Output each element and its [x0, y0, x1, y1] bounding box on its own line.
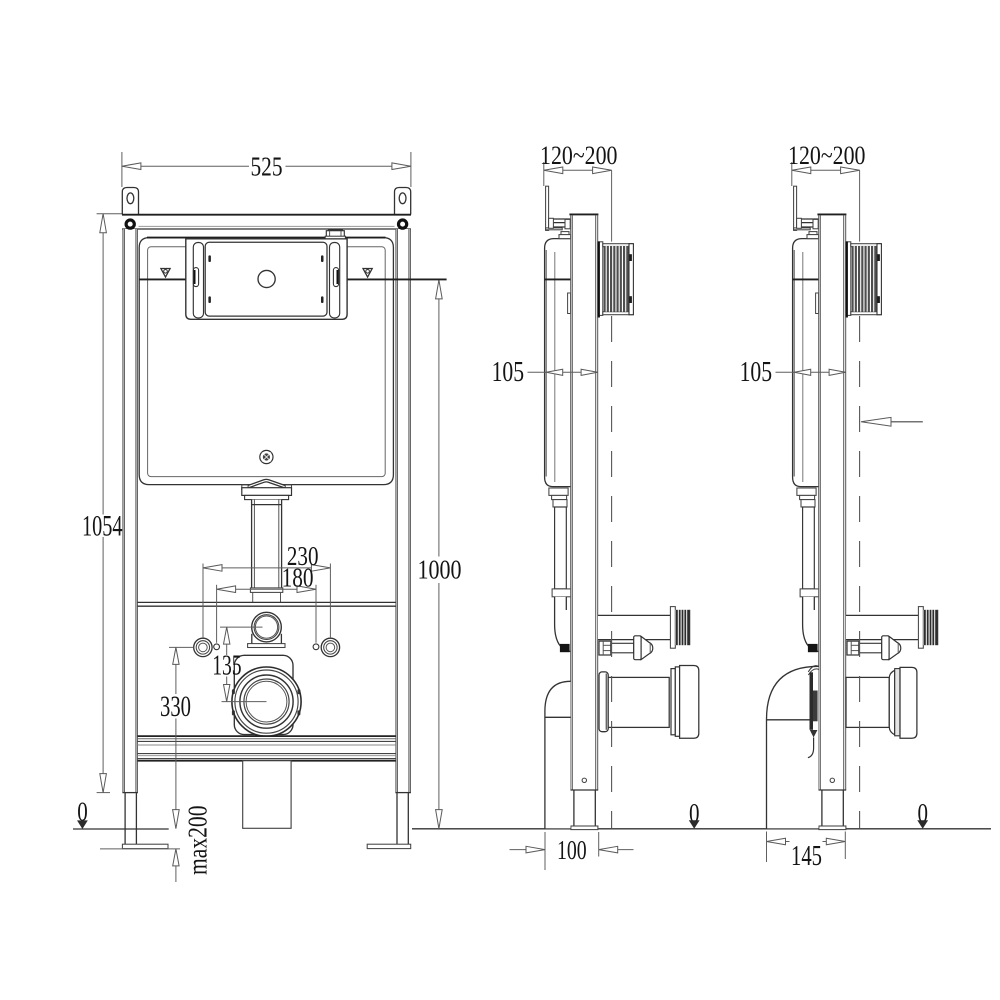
svg-text:105: 105 [492, 356, 524, 388]
svg-text:120~200: 120~200 [788, 140, 866, 170]
svg-text:525: 525 [251, 150, 283, 181]
svg-text:100: 100 [557, 835, 587, 865]
svg-text:120~200: 120~200 [540, 140, 618, 170]
svg-text:330: 330 [160, 690, 191, 723]
svg-text:145: 145 [791, 840, 822, 872]
svg-text:max200: max200 [182, 806, 213, 876]
svg-text:1000: 1000 [418, 553, 462, 584]
svg-text:180: 180 [282, 563, 314, 593]
svg-text:105: 105 [740, 356, 773, 388]
svg-text:1054: 1054 [82, 510, 123, 543]
svg-text:135: 135 [212, 650, 241, 682]
